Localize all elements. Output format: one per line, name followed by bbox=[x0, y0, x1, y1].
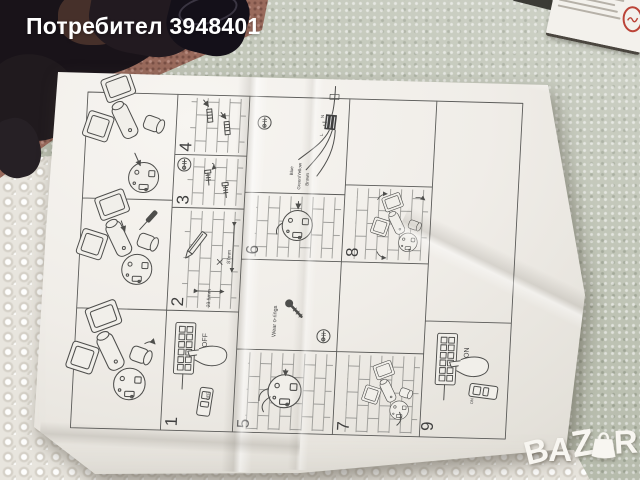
packing-foam-background bbox=[0, 0, 640, 480]
shopping-bag-icon bbox=[591, 428, 618, 460]
carpet bbox=[0, 0, 640, 480]
table-borders bbox=[70, 92, 522, 439]
panel-number: 5 bbox=[234, 418, 253, 428]
wear-orings-note bbox=[284, 300, 332, 343]
panel-number: 2 bbox=[168, 297, 187, 307]
panel-9-power-on bbox=[434, 333, 501, 401]
label-wire-earth: Green/Yellow bbox=[296, 162, 302, 189]
panel-number: 4 bbox=[176, 142, 195, 152]
wiring-diagram bbox=[255, 85, 339, 177]
label-terminal-n: N bbox=[320, 115, 325, 118]
paper-crease bbox=[437, 40, 589, 102]
panel-number: 8 bbox=[343, 247, 362, 257]
brick-wall bbox=[181, 211, 241, 309]
label-terminal-l: L bbox=[319, 133, 324, 136]
panel-number: 3 bbox=[173, 195, 192, 205]
label-remote-on: ON bbox=[469, 398, 474, 404]
brick-wall bbox=[344, 355, 420, 434]
brick-wall bbox=[354, 188, 430, 261]
panel-number: 7 bbox=[334, 421, 353, 431]
brick-wall bbox=[189, 98, 247, 153]
panel-7-attach-light bbox=[360, 359, 415, 425]
watermark-username: Потребител 3948401 bbox=[26, 13, 260, 40]
label-remote-off: OFF bbox=[205, 392, 210, 401]
panel-8-adjust-heads bbox=[369, 191, 425, 258]
label-wire-live: Brown bbox=[304, 172, 310, 185]
panel-4-wall-anchors bbox=[202, 100, 232, 135]
panel-1-power-off bbox=[171, 322, 228, 416]
dark-object-rim bbox=[176, 0, 241, 30]
bazar-logo: BAZR bbox=[522, 417, 640, 472]
bubble-wrap bbox=[0, 0, 640, 480]
instruction-sheet-wrap: 4 3 2 1 6 5 8 7 9 OFF ON OFF ON Wear o-r… bbox=[0, 0, 640, 480]
logo-letter: A bbox=[548, 431, 572, 469]
label-wire-blue: Blue bbox=[289, 166, 294, 176]
logo-letter: B bbox=[520, 430, 552, 473]
label-power-off: OFF bbox=[202, 333, 210, 347]
panel-number: 9 bbox=[418, 421, 437, 431]
instruction-sheet: 4 3 2 1 6 5 8 7 9 OFF ON OFF ON Wear o-r… bbox=[0, 0, 640, 480]
logo-letter: Z bbox=[568, 421, 598, 466]
label-power-on: ON bbox=[463, 347, 471, 358]
label-dim-87mm: 87mm bbox=[226, 250, 233, 264]
dark-object bbox=[0, 0, 176, 93]
photo: 4 3 2 1 6 5 8 7 9 OFF ON OFF ON Wear o-r… bbox=[0, 0, 640, 480]
panel-2-mark-holes bbox=[181, 225, 234, 292]
brick-wall bbox=[254, 195, 342, 258]
panel-number: 1 bbox=[162, 417, 181, 427]
panel-3-insert-screws bbox=[176, 158, 231, 198]
panel-6-mount-plate bbox=[276, 201, 313, 241]
logo-letter: R bbox=[613, 423, 639, 462]
panel-number: 6 bbox=[243, 245, 262, 255]
brick-wall bbox=[186, 158, 243, 206]
dark-object bbox=[160, 0, 255, 63]
paper-crease bbox=[394, 206, 618, 340]
product-overview-drawing bbox=[79, 69, 169, 193]
paper-crease bbox=[40, 421, 301, 457]
dark-object bbox=[0, 39, 94, 156]
instruction-diagram: 4 3 2 1 6 5 8 7 9 OFF ON OFF ON Wear o-r… bbox=[70, 92, 528, 443]
paper-crease bbox=[287, 78, 324, 470]
brick-wall bbox=[245, 352, 334, 431]
dark-object bbox=[83, 0, 206, 64]
product-box bbox=[545, 0, 640, 55]
dark-object bbox=[0, 113, 47, 183]
panel-5-plate-wiring bbox=[258, 369, 302, 413]
dark-object bbox=[58, 0, 128, 45]
product-overview-drawing bbox=[74, 187, 163, 285]
label-wear-orings: Wear o-rings bbox=[271, 305, 279, 337]
paper-crease bbox=[221, 66, 269, 473]
box-logo-red-circle bbox=[620, 4, 640, 35]
label-dim-235mm: 23.5mm bbox=[206, 289, 213, 307]
product-overview-drawing bbox=[63, 298, 157, 401]
